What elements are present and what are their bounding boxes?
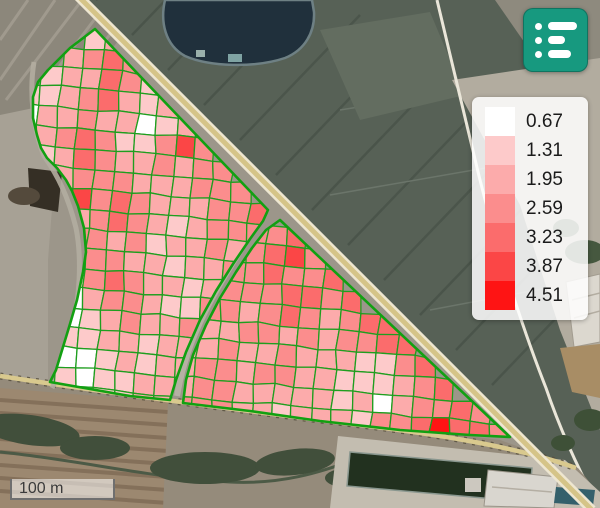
zone-cell[interactable] [124,252,146,273]
zone-cell[interactable] [253,363,275,385]
zone-cell[interactable] [86,228,108,250]
zone-cell[interactable] [36,105,57,128]
zone-cell[interactable] [218,338,240,360]
zone-cell[interactable] [74,128,95,150]
zone-cell[interactable] [260,284,282,305]
zone-cell[interactable] [132,173,152,193]
zone-cell[interactable] [106,232,126,252]
legend-value: 4.51 [526,281,563,310]
zone-cell[interactable] [394,354,415,376]
zone-cell[interactable] [115,371,134,393]
zone-cell[interactable] [128,193,150,214]
zone-cell[interactable] [133,373,155,396]
zone-cell[interactable] [373,394,393,413]
legend-item: 3.23 [485,223,588,252]
zone-cell[interactable] [160,314,180,337]
legend-value: 3.87 [526,252,563,281]
legend-swatch [485,165,515,194]
zone-cell[interactable] [93,368,115,390]
zone-cell[interactable] [180,297,201,319]
zone-cell[interactable] [321,288,343,310]
zone-cell[interactable] [57,106,78,128]
zone-cell[interactable] [169,197,190,217]
zone-cell[interactable] [134,353,156,376]
zone-cell[interactable] [376,335,399,355]
zone-cell[interactable] [282,284,303,308]
zone-cell[interactable] [58,85,81,109]
zone-cell[interactable] [303,268,326,288]
zone-cell[interactable] [291,388,313,409]
zone-cell[interactable] [355,352,376,373]
zone-cell[interactable] [193,158,214,179]
zone-cell[interactable] [127,214,150,234]
zone-cell[interactable] [73,168,95,188]
zone-cell[interactable] [316,350,337,370]
scale-bar-label: 100 m [19,480,63,497]
legend-swatch [485,252,515,281]
zone-cell[interactable] [134,134,156,154]
zone-cell[interactable] [207,220,229,240]
zone-cell[interactable] [214,359,237,382]
legend-value: 1.31 [526,136,563,165]
zone-cell[interactable] [90,189,112,212]
legend-item: 3.87 [485,252,588,281]
zone-cell[interactable] [146,214,168,235]
zone-cell[interactable] [334,370,355,391]
zone-cell[interactable] [141,295,162,315]
legend-value: 3.23 [526,223,563,252]
zone-cell[interactable] [279,326,298,345]
zone-cell[interactable] [120,311,141,335]
zone-cell[interactable] [92,170,115,191]
zone-cell[interactable] [73,149,95,170]
zone-cell[interactable] [258,322,280,344]
zone-cell[interactable] [220,299,240,322]
zone-cell[interactable] [100,291,124,311]
zone-cell[interactable] [319,309,341,330]
zone-cell[interactable] [393,376,415,397]
zone-cell[interactable] [301,286,323,309]
legend-value: 2.59 [526,194,563,223]
legend-value: 1.95 [526,165,563,194]
zone-cell[interactable] [244,263,264,284]
legend-value: 0.67 [526,107,563,136]
zone-cell[interactable] [239,302,261,323]
zone-cell[interactable] [61,67,82,88]
zone-cell[interactable] [171,177,193,199]
scale-bar: 100 m [10,479,115,500]
zone-cell[interactable] [228,220,247,241]
legend: 0.671.311.952.593.233.874.51 [472,97,588,320]
legend-swatch [485,281,515,310]
zone-cell[interactable] [155,135,177,156]
legend-swatch [485,136,515,165]
legend-item: 4.51 [485,281,588,310]
map-viewport[interactable]: 0.671.311.952.593.233.874.51 100 m [0,0,600,508]
zone-cell[interactable] [78,88,98,112]
zone-cell[interactable] [144,273,163,295]
zone-cell[interactable] [76,348,97,368]
zone-cell[interactable] [108,211,129,232]
zone-cell[interactable] [264,263,285,284]
zone-cell[interactable] [186,216,208,239]
legend-item: 1.31 [485,136,588,165]
zone-cell[interactable] [181,278,203,298]
legend-rows: 0.671.311.952.593.233.874.51 [485,107,588,310]
zone-cell[interactable] [119,331,139,353]
zone-cell[interactable] [353,391,373,412]
zone-cell[interactable] [138,335,160,355]
zone-cell[interactable] [192,376,214,400]
zone-cell[interactable] [373,373,395,396]
zone-cell[interactable] [284,246,305,269]
zone-cell[interactable] [83,50,105,69]
zone-cell[interactable] [77,110,98,131]
zone-cell[interactable] [55,128,77,149]
zone-cell[interactable] [85,248,106,271]
legend-item: 0.67 [485,107,588,136]
zone-cell[interactable] [185,256,205,279]
zone-cell[interactable] [207,198,231,221]
layers-menu-button[interactable] [523,8,588,72]
zone-cell[interactable] [95,150,116,172]
zone-cell[interactable] [152,154,176,177]
zone-cell[interactable] [115,132,135,151]
zone-cell[interactable] [294,367,316,389]
zone-cell[interactable] [155,116,178,135]
zone-cell[interactable] [166,215,189,237]
zone-cell[interactable] [115,151,134,173]
zone-cell[interactable] [113,172,134,194]
list-icon [535,22,577,58]
zone-cell[interactable] [336,350,357,371]
zone-cell[interactable] [253,383,275,403]
zone-cell[interactable] [356,332,377,353]
zone-cell[interactable] [275,344,297,367]
zone-cell[interactable] [353,371,375,394]
zone-cell[interactable] [76,368,95,388]
zone-cell[interactable] [313,367,337,390]
zone-cell[interactable] [98,89,119,112]
zone-cell[interactable] [140,93,159,116]
zone-cell[interactable] [414,376,436,399]
zone-cell[interactable] [412,396,435,417]
pond-top [163,0,314,65]
zone-cell[interactable] [176,135,196,158]
zone-cell[interactable] [79,309,101,330]
zone-cell[interactable] [155,355,176,378]
zone-cell[interactable] [100,310,122,331]
legend-swatch [485,107,515,136]
zone-cell[interactable] [298,307,321,329]
zone-cell[interactable] [104,271,124,291]
zone-cell[interactable] [280,305,301,328]
zone-cell[interactable] [375,353,397,376]
zone-cell[interactable] [296,346,318,368]
zone-cell[interactable] [186,238,208,258]
zone-cell[interactable] [163,256,186,278]
zone-cell[interactable] [336,329,360,352]
zone-cell[interactable] [272,383,293,405]
zone-cell[interactable] [239,322,259,343]
zone-cell[interactable] [232,382,253,404]
zone-cell[interactable] [95,130,116,151]
zone-cell[interactable] [331,390,353,410]
legend-item: 1.95 [485,165,588,194]
zone-cell[interactable] [236,361,255,385]
legend-swatch [485,194,515,223]
zone-cell[interactable] [106,250,125,271]
zone-cell[interactable] [139,314,160,335]
legend-item: 2.59 [485,194,588,223]
zone-cell[interactable] [339,310,361,332]
zone-cell[interactable] [149,193,171,216]
zone-cell[interactable] [166,235,186,256]
zone-cell[interactable] [97,330,120,351]
zone-cell[interactable] [204,258,224,280]
zone-cell[interactable] [282,266,305,286]
legend-swatch [485,223,515,252]
zone-cell[interactable] [119,91,141,114]
zone-cell[interactable] [125,232,147,253]
zone-cell[interactable] [174,156,194,178]
